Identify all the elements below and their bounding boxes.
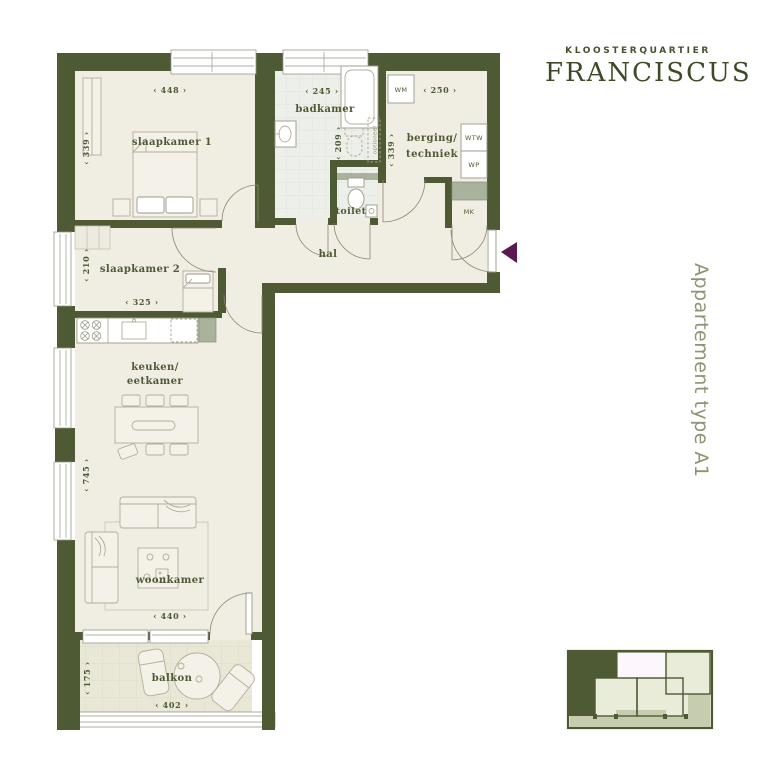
tall-cabinet [199,318,216,342]
dim-storage-width: ‹ 250 › [423,85,457,95]
room-label-kitchen-1: keuken/ [131,362,179,373]
dim-livingroom-width: ‹ 440 › [153,611,187,621]
dim-balcony-depth: ‹ 175 › [82,661,92,695]
room-label-bedroom2: slaapkamer 2 [100,264,180,275]
brand-kicker: KLOOSTERQUARTIER [545,46,731,56]
minimap-core [617,652,666,678]
dim-bathroom-depth: ‹ 209 › [333,126,343,160]
apartment-type-label: Appartement type A1 [690,263,712,478]
optional-note: optioneel [373,126,379,155]
dim-storage-depth: ‹ 339 › [386,133,396,167]
brochure-page: slaapkamer 1 ‹ 448 › ‹ 339 › badkamer ‹ … [0,0,767,783]
mk-label: MK [464,208,475,216]
dim-bathroom-width: ‹ 245 › [305,86,339,96]
room-label-hall: hal [319,249,338,260]
brand-name: FRANCISCUS [545,58,731,88]
room-label-balcony: balkon [152,673,193,684]
small-basin [366,205,377,217]
balcony-door-leaf [246,593,252,634]
room-label-toilet: toilet [336,206,367,217]
room-label-storage-1: berging/ [407,133,458,144]
toilet-cistern [348,178,364,187]
dim-balcony-width: ‹ 402 › [155,700,189,710]
dim-bedroom1-width: ‹ 448 › [153,85,187,95]
brand-logo: KLOOSTERQUARTIER FRANCISCUS [545,46,731,88]
sofa-2 [85,532,118,603]
wtw-label: WTW [465,134,483,142]
room-label-kitchen-2: eetkamer [127,376,183,387]
room-label-bedroom1: slaapkamer 1 [132,137,212,148]
room-label-storage-2: techniek [406,149,459,160]
wp-label: WP [468,161,479,169]
dim-kitchen-depth: ‹ 745 › [81,458,91,492]
dim-bedroom1-depth: ‹ 339 › [81,131,91,165]
dining-table [115,407,198,443]
dim-bedroom2-width: ‹ 325 › [125,297,159,307]
entrance-arrow-icon [501,242,517,263]
site-minimap [568,651,712,728]
washing-machine-label: WM [395,86,408,94]
room-label-bathroom: badkamer [295,104,355,115]
floorplan-canvas: slaapkamer 1 ‹ 448 › ‹ 339 › badkamer ‹ … [0,0,767,783]
entrance-door-leaf [488,230,496,272]
dim-bedroom2-depth: ‹ 210 › [81,248,91,282]
room-label-livingroom: woonkamer [135,575,205,586]
bathtub [341,66,378,128]
tech-cabinet [452,182,487,200]
